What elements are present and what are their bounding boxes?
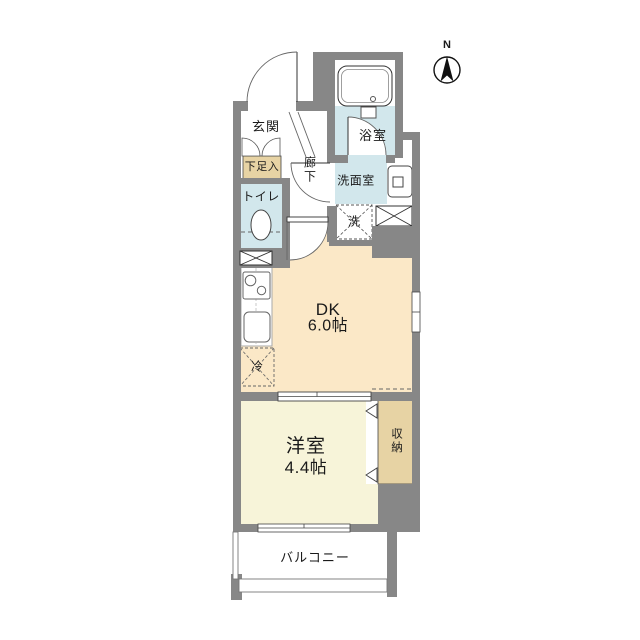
pipe-space-box-left-overlay [240,251,272,265]
room-label-balcony: バルコニー [280,551,350,565]
room-label-hallway: 廊下 [302,156,319,184]
label-washer: 洗 [348,216,360,229]
room-label-entrance: 玄関 [252,120,280,134]
room-size-western-room: 4.4帖 [285,459,328,477]
bath-counter [361,107,376,118]
kitchen-stove [243,272,270,299]
floor-plan: N 玄関 下足入 トイレ 廊下 浴室 洗面室 洗 DK 6.0帖 冷 洋室 4.… [0,0,640,640]
room-label-bathroom: 浴室 [359,129,387,143]
window-bedroom-south [258,524,350,532]
washroom-faucet [393,177,403,187]
room-label-dk: DK [316,301,341,319]
room-label-toilet: トイレ [242,191,280,204]
entrance-door [247,52,297,102]
pipe-space-box-top [376,206,412,226]
bathtub-drain [371,97,376,102]
room-label-washroom: 洗面室 [337,175,375,188]
compass-n-label: N [443,40,451,52]
kitchen-sink [244,312,270,342]
toilet-fixture [251,210,271,240]
sliding-door-dk-bedroom [278,392,371,401]
room-label-closet: 収納 [388,428,404,455]
bathtub [338,66,392,106]
room-size-dk: 6.0帖 [308,319,348,336]
window-dk-east [412,292,420,332]
label-refrigerator: 冷 [251,361,263,374]
room-label-shoe-cabinet: 下足入 [245,162,280,174]
compass [434,57,460,84]
room-label-western-room: 洋室 [286,437,326,457]
